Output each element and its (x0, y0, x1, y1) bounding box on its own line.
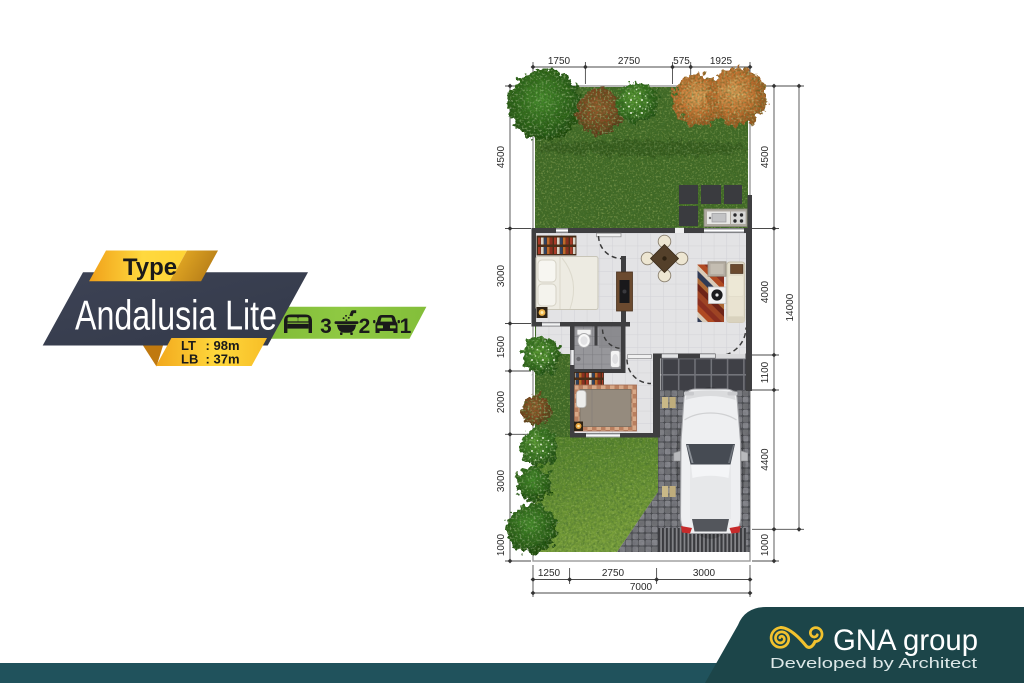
svg-text:4500: 4500 (496, 145, 507, 168)
svg-text:2750: 2750 (602, 568, 625, 579)
svg-text:3000: 3000 (496, 469, 507, 492)
svg-text:1250: 1250 (538, 568, 561, 579)
svg-text:1000: 1000 (496, 533, 507, 556)
svg-text:4500: 4500 (760, 145, 771, 168)
svg-text:2000: 2000 (496, 390, 507, 413)
svg-text:14000: 14000 (785, 293, 796, 321)
svg-text:2750: 2750 (618, 56, 641, 67)
svg-text:1100: 1100 (760, 361, 771, 383)
svg-text:Type: Type (123, 254, 177, 281)
svg-text:1000: 1000 (760, 533, 771, 556)
svg-text:1925: 1925 (710, 56, 733, 67)
svg-text:4000: 4000 (760, 280, 771, 303)
svg-text:2: 2 (359, 315, 371, 338)
svg-text:Developed by Architect: Developed by Architect (770, 656, 977, 672)
svg-text:575: 575 (673, 56, 690, 67)
svg-text:7000: 7000 (630, 582, 653, 593)
svg-text:Andalusia Lite: Andalusia Lite (75, 292, 277, 339)
svg-text:1750: 1750 (548, 56, 571, 67)
svg-text:1500: 1500 (496, 335, 507, 358)
svg-text:3000: 3000 (496, 264, 507, 287)
svg-text:37m: 37m (214, 351, 240, 366)
svg-text::: : (206, 351, 210, 366)
svg-text:4400: 4400 (760, 448, 771, 471)
svg-text:GNA group: GNA group (833, 624, 978, 657)
svg-text:LB: LB (181, 351, 198, 366)
svg-text:3000: 3000 (693, 568, 716, 579)
svg-text:3: 3 (320, 315, 332, 338)
svg-text:1: 1 (400, 315, 412, 338)
